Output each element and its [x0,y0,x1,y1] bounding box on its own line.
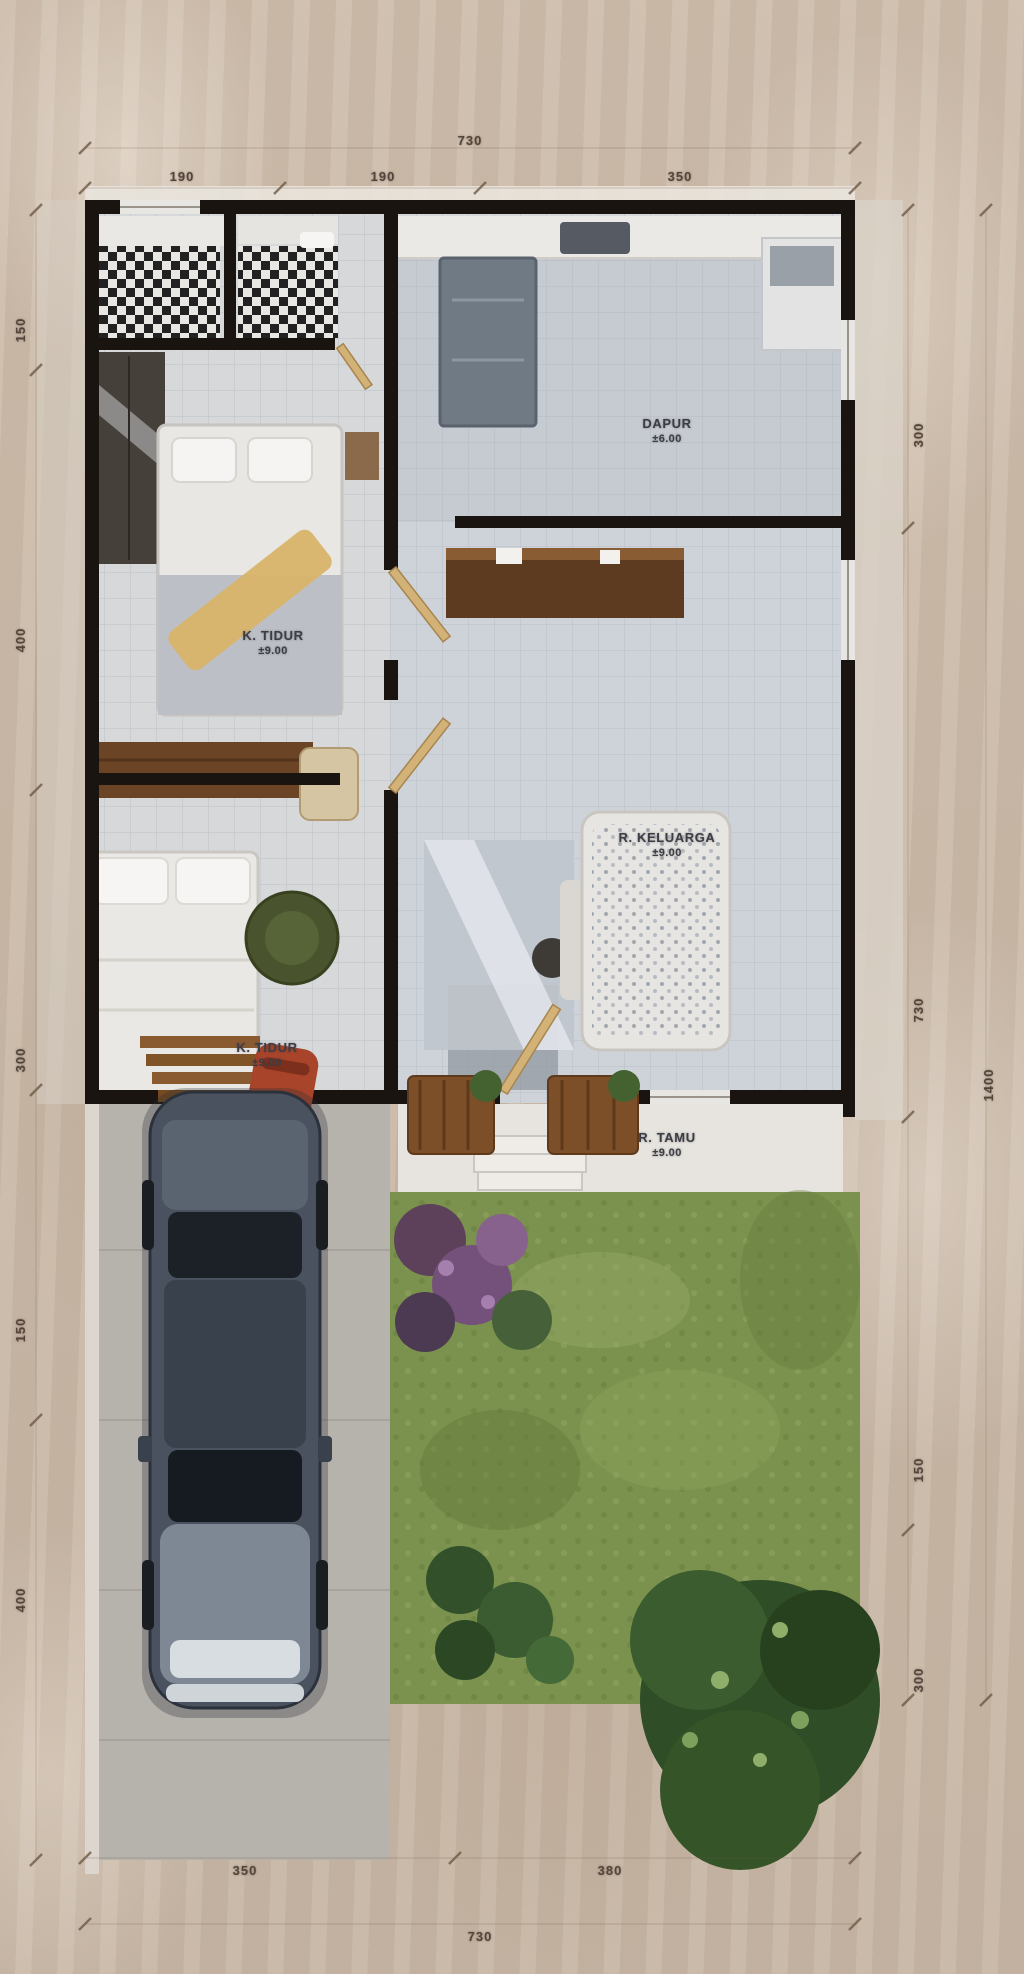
car-bumper [166,1684,304,1702]
dim-top-1: 190 [142,168,222,184]
dim-right-3: 150 [910,1430,926,1510]
room-name: R. TAMU [582,1130,752,1145]
wall-hall-c [384,790,398,1090]
dim-left-3: 300 [12,1020,28,1100]
wall-top [85,200,855,214]
car-mirror [318,1436,332,1462]
wall-kitchen-bottom [455,516,855,528]
car-mirror [138,1436,152,1462]
terrace-bench [408,1070,502,1154]
floor-plan-drawing [0,0,1024,1974]
nightstand [345,432,379,480]
dim-bottom-total: 730 [440,1928,520,1944]
car-wheel [316,1560,328,1630]
garden [390,1190,880,1870]
car-wheel [142,1180,154,1250]
dim-right-total: 1400 [980,1045,996,1125]
car-windshield [168,1450,302,1522]
dim-left-2: 400 [12,600,28,680]
bathroom-floor-right [238,246,338,338]
armchair [246,892,338,984]
car-roof [164,1280,306,1448]
wall-hall-a [384,200,398,570]
room-label-tamu: R. TAMU ±9.00 [582,1130,752,1159]
kitchen-island [440,258,536,426]
floor-plan-image: 730 190 190 350 150 400 300 150 400 300 … [0,0,1024,1974]
room-name: R. KELUARGA [582,830,752,845]
car-wheel [142,1560,154,1630]
wall-hall-b [384,660,398,700]
room-label-dapur: DAPUR ±6.00 [582,416,752,445]
room-name: K. TIDUR [188,628,358,643]
desk [93,742,313,798]
potted-plant [608,1070,640,1102]
room-label-bedroom-1: K. TIDUR ±9.00 [188,628,358,657]
wall-bath-divider [224,200,236,350]
room-area: ±6.00 [582,433,752,445]
car-rear-window [168,1212,302,1278]
tree [630,1570,880,1870]
dim-bottom-1: 350 [205,1862,285,1878]
car-trunk [162,1120,308,1210]
wall-left [85,200,99,1104]
dim-top-total: 730 [430,132,510,148]
car [138,1088,332,1718]
dim-right-4: 300 [910,1640,926,1720]
pillow [94,858,168,904]
room-area: ±9.00 [188,645,358,657]
dim-left-4: 150 [12,1290,28,1370]
room-area: ±9.00 [182,1057,352,1069]
bathroom-floor-left [97,246,220,338]
dim-bottom-2: 380 [570,1862,650,1878]
wardrobe [93,352,165,564]
pillow [172,438,236,482]
room-name: DAPUR [582,416,752,431]
wall-bedroom-divider [85,773,340,785]
dim-right-1: 300 [910,395,926,475]
bathroom [91,216,338,338]
wall-bottom-right-b [610,1090,855,1104]
room-area: ±9.00 [582,1147,752,1159]
room-area: ±9.00 [582,847,752,859]
sink [300,232,334,248]
room-name: K. TIDUR [182,1040,352,1055]
car-wheel [316,1180,328,1250]
carport [85,1036,390,1874]
dim-left-1: 150 [12,290,28,370]
bed [158,425,342,715]
room-label-bedroom-2: K. TIDUR ±9.00 [182,1040,352,1069]
dim-top-3: 350 [640,168,720,184]
potted-plant [470,1070,502,1102]
dim-left-5: 400 [12,1560,28,1640]
pillow [248,438,312,482]
stove [560,222,630,254]
dim-top-2: 190 [343,168,423,184]
kitchen [390,216,843,522]
dim-right-2: 730 [910,970,926,1050]
room-label-keluarga: R. KELUARGA ±9.00 [582,830,752,859]
wall-bath-bottom [85,338,335,350]
pillow [176,858,250,904]
